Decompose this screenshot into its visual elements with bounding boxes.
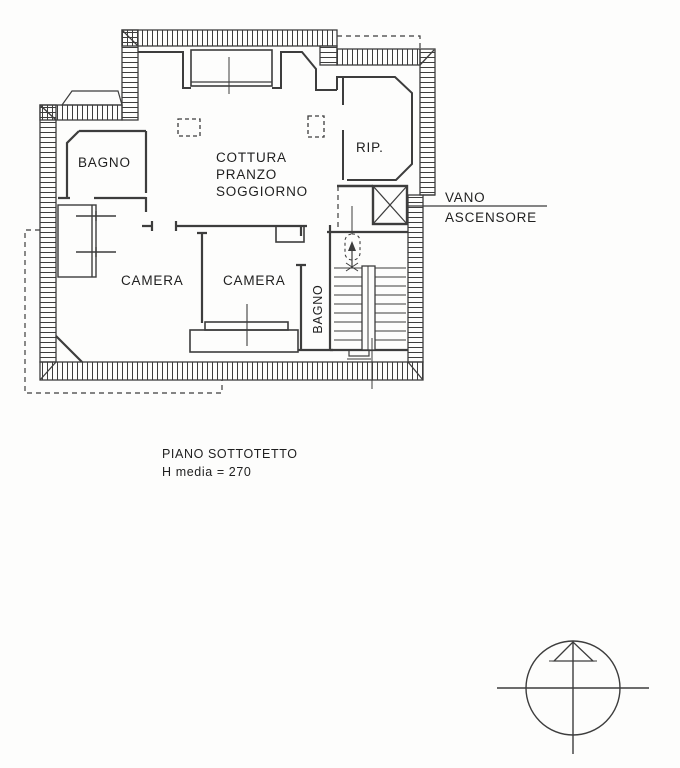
bagno1-walls	[58, 131, 146, 212]
elevator-shaft	[373, 186, 407, 224]
elevator-label-line1: VANO	[445, 190, 485, 205]
living-north-contour	[138, 52, 343, 90]
roof-windows	[178, 116, 324, 137]
interior-walls	[56, 52, 412, 362]
partition-camera1-camera2	[197, 233, 207, 323]
wall-top-main	[122, 30, 337, 46]
room-label-soggiorno: SOGGIORNO	[216, 184, 308, 199]
bottom-closet	[190, 304, 298, 352]
room-label-rip: RIP.	[356, 140, 384, 155]
elevator-label-line2: ASCENSORE	[445, 210, 537, 225]
north-window	[191, 50, 272, 94]
closet-column	[58, 205, 116, 277]
room-label-camera-2: CAMERA	[223, 273, 286, 288]
roof-overhang-dashed-outline	[25, 36, 420, 393]
stair-arrow-head	[348, 241, 356, 251]
north-compass-icon	[497, 641, 649, 754]
room-label-bagno-2: BAGNO	[311, 284, 325, 333]
flue-closet	[276, 226, 304, 242]
wall-right-lower	[408, 195, 423, 362]
plan-sheet: BAGNO COTTURA PRANZO SOGGIORNO RIP. CAME…	[0, 0, 680, 768]
room-labels: BAGNO COTTURA PRANZO SOGGIORNO RIP. CAME…	[78, 140, 384, 334]
rip-room-outline	[343, 77, 412, 180]
wall-top-left-section	[40, 105, 122, 120]
floor-caption: PIANO SOTTOTETTO H media = 270	[162, 447, 298, 479]
wall-top-right	[337, 49, 420, 65]
dormer-outline	[62, 91, 122, 105]
room-label-camera-1: CAMERA	[121, 273, 184, 288]
roof-window-left	[178, 119, 200, 136]
elevator-annotation: VANO ASCENSORE	[445, 190, 537, 225]
floor-plan-svg: BAGNO COTTURA PRANZO SOGGIORNO RIP. CAME…	[0, 0, 680, 768]
wall-left	[40, 105, 56, 362]
room-label-pranzo: PRANZO	[216, 167, 277, 182]
room-label-bagno-1: BAGNO	[78, 155, 131, 170]
chamfer-sw	[56, 336, 82, 362]
wall-bottom	[40, 362, 423, 380]
caption-height: H media = 270	[162, 465, 251, 479]
roof-window-right	[308, 116, 324, 137]
wall-right-upper	[420, 49, 435, 195]
wall-top-jog	[320, 46, 337, 65]
caption-floor-name: PIANO SOTTOTETTO	[162, 447, 298, 461]
room-label-cottura: COTTURA	[216, 150, 287, 165]
